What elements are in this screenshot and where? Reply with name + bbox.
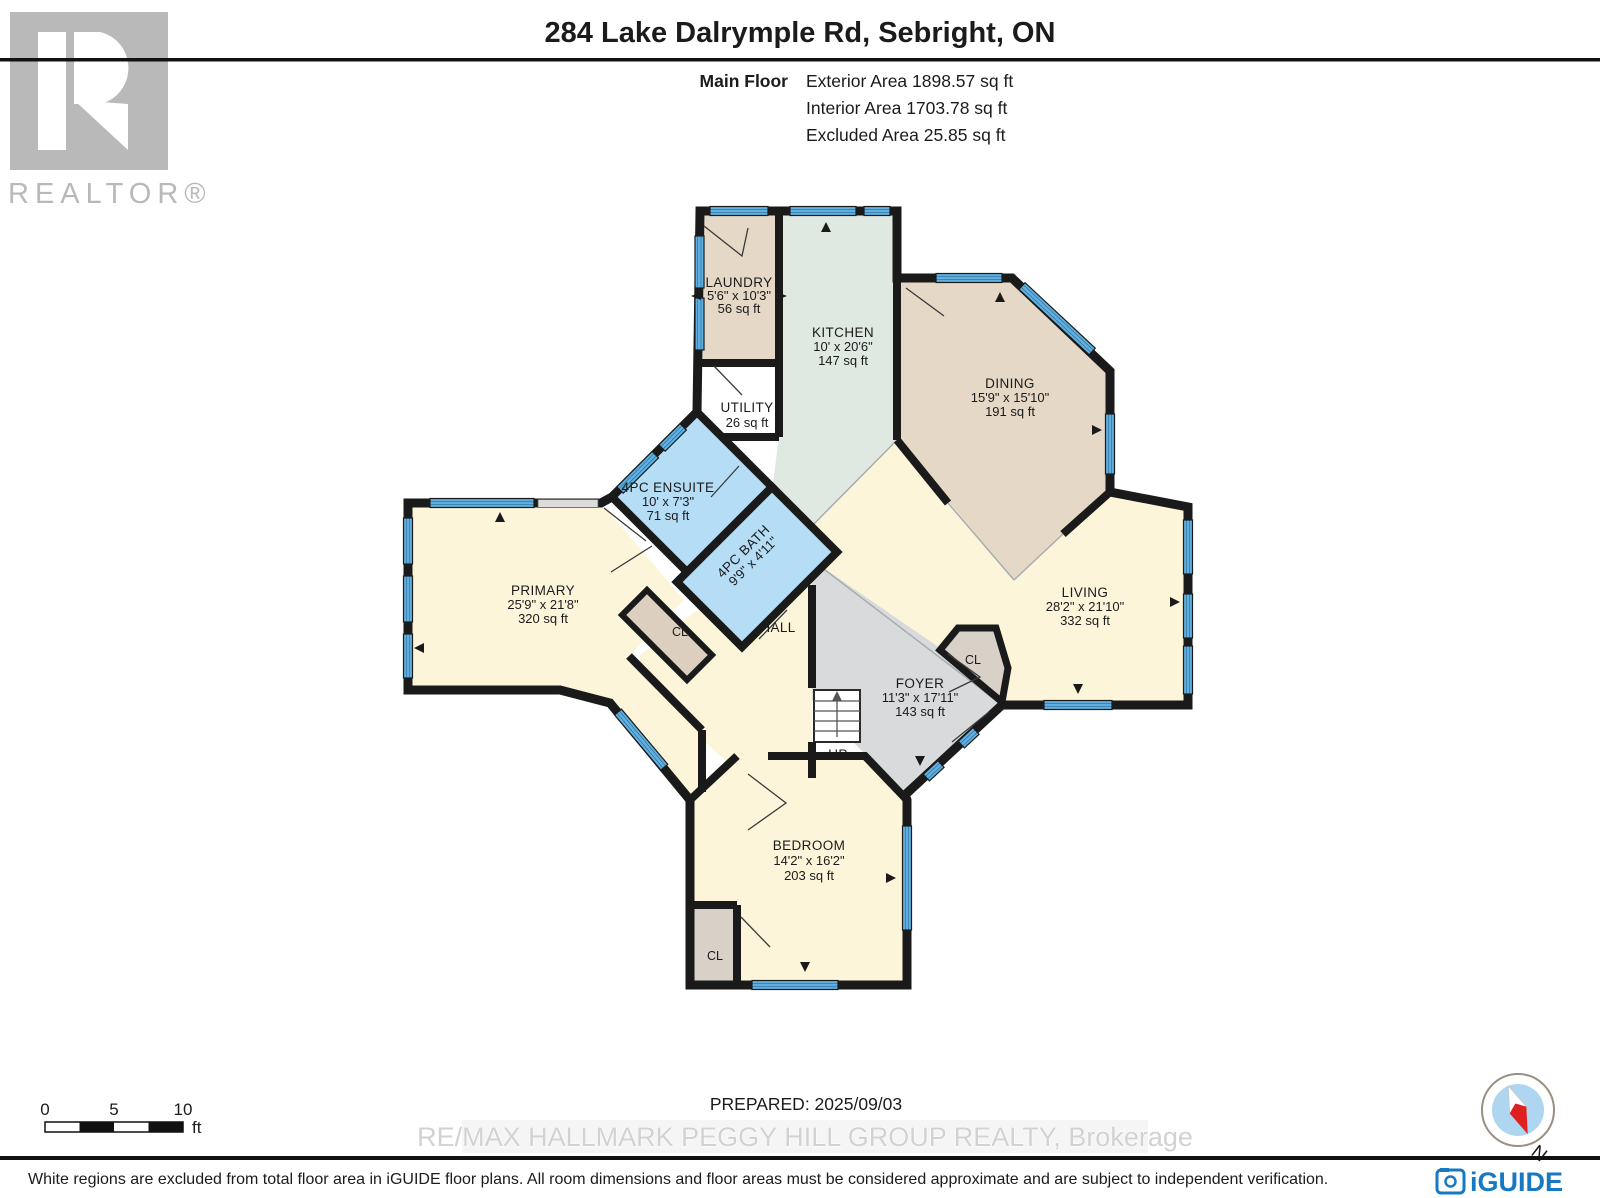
- closet-label: CL: [965, 653, 981, 667]
- room-dims: 15'9" x 15'10": [971, 390, 1050, 405]
- room-label: PRIMARY: [511, 583, 575, 598]
- footer-disclaimer: White regions are excluded from total fl…: [28, 1171, 1328, 1188]
- iguide-logo: iGUIDE: [1437, 1167, 1563, 1197]
- room-label: DINING: [985, 376, 1035, 391]
- footer: 0 5 10 ft PREPARED: 2025/09/03 RE/MAX HA…: [0, 1074, 1600, 1197]
- room-dims: 14'2" x 16'2": [773, 853, 845, 868]
- interior-area: Interior Area 1703.78 sq ft: [806, 98, 1008, 118]
- room-label: UTILITY: [720, 400, 773, 415]
- room-dims: 10' x 7'3": [642, 494, 695, 509]
- room-dims: 10' x 20'6": [813, 339, 873, 354]
- room-label: KITCHEN: [812, 325, 874, 340]
- closet-label: CL: [672, 625, 688, 639]
- iguide-logo-text: iGUIDE: [1470, 1167, 1563, 1197]
- exterior-area: Exterior Area 1898.57 sq ft: [806, 71, 1013, 91]
- room-area: 332 sq ft: [1060, 613, 1110, 628]
- scale-bar: 0 5 10 ft: [40, 1100, 201, 1137]
- scale-unit: ft: [192, 1118, 202, 1137]
- floor-plan-page: REALTOR® 284 Lake Dalrymple Rd, Sebright…: [0, 0, 1600, 1198]
- scale-tick-10: 10: [174, 1100, 193, 1119]
- room-label: FOYER: [896, 676, 945, 691]
- stairs: [814, 690, 860, 742]
- room-area: 26 sq ft: [726, 415, 769, 430]
- room-area: 71 sq ft: [647, 508, 690, 523]
- iguide-camera-icon: [1437, 1168, 1464, 1193]
- closet-label: CL: [707, 949, 723, 963]
- room-area: 147 sq ft: [818, 353, 868, 368]
- room-area: 203 sq ft: [784, 868, 834, 883]
- room-dims: 25'9" x 21'8": [507, 597, 579, 612]
- room-label: LIVING: [1062, 585, 1109, 600]
- header: REALTOR® 284 Lake Dalrymple Rd, Sebright…: [0, 12, 1600, 210]
- room-dims: 28'2" x 21'10": [1046, 599, 1125, 614]
- prepared-date: PREPARED: 2025/09/03: [710, 1094, 902, 1114]
- scale-tick-5: 5: [109, 1100, 118, 1119]
- header-rule: [0, 58, 1600, 62]
- footer-rule: [0, 1156, 1600, 1160]
- room-area: 320 sq ft: [518, 611, 568, 626]
- room-label: HALL: [760, 620, 795, 635]
- room-dims: 11'3" x 17'11": [882, 690, 959, 705]
- page-title: 284 Lake Dalrymple Rd, Sebright, ON: [545, 17, 1056, 49]
- floor-plan: LAUNDRY 5'6" x 10'3" 56 sq ft KITCHEN 10…: [404, 207, 1193, 990]
- brokerage-watermark: RE/MAX HALLMARK PEGGY HILL GROUP REALTY,…: [417, 1122, 1193, 1152]
- closet-bedroom: [690, 905, 737, 985]
- room-area: 143 sq ft: [895, 704, 945, 719]
- up-label: UP: [828, 747, 848, 762]
- compass-north-label: N: [1527, 1141, 1551, 1166]
- room-label: BEDROOM: [773, 838, 846, 853]
- room-area: 56 sq ft: [718, 301, 761, 316]
- excluded-area: Excluded Area 25.85 sq ft: [806, 125, 1006, 145]
- floor-label: Main Floor: [700, 71, 789, 91]
- floor-plan-canvas: REALTOR® 284 Lake Dalrymple Rd, Sebright…: [0, 0, 1600, 1198]
- room-label: 4PC ENSUITE: [622, 480, 715, 495]
- compass: N: [1482, 1074, 1554, 1166]
- realtor-logo-text: REALTOR®: [8, 178, 212, 210]
- patio-door: [538, 500, 598, 508]
- room-area: 191 sq ft: [985, 404, 1035, 419]
- scale-tick-0: 0: [40, 1100, 49, 1119]
